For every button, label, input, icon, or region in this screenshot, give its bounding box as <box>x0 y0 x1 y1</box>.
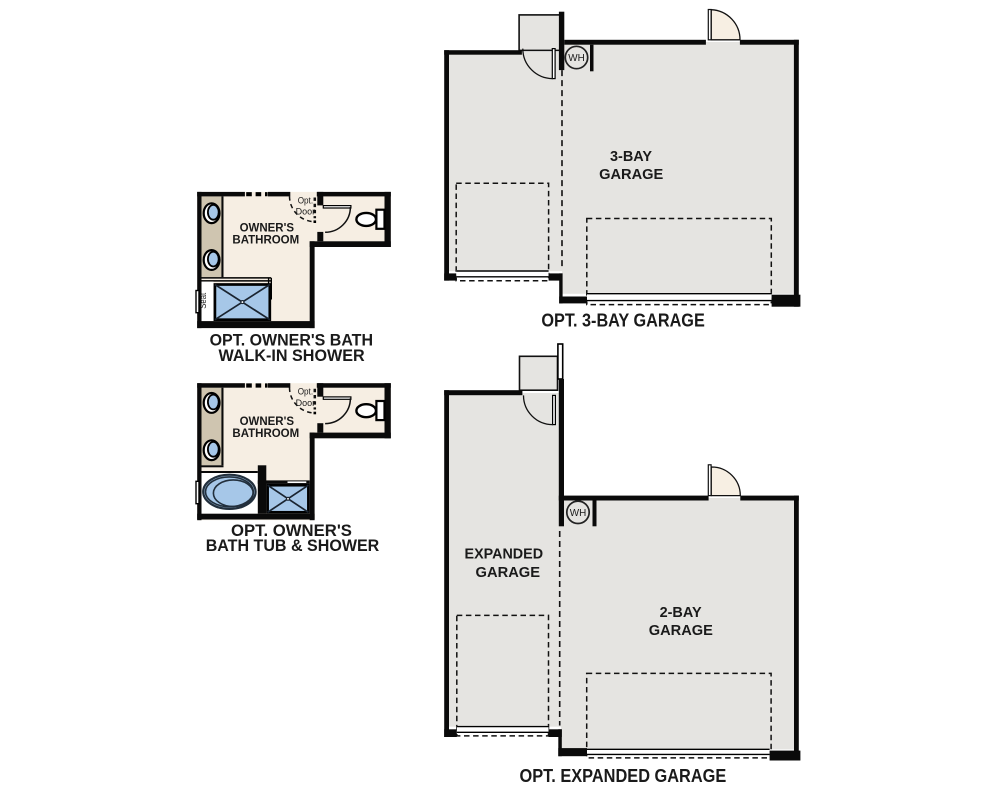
svg-text:OPT. 3-BAY GARAGE: OPT. 3-BAY GARAGE <box>541 310 704 331</box>
svg-text:EXPANDED: EXPANDED <box>465 547 544 563</box>
svg-text:WALK-IN SHOWER: WALK-IN SHOWER <box>219 346 365 365</box>
svg-text:3-BAY: 3-BAY <box>610 149 652 165</box>
svg-text:Door: Door <box>296 207 316 217</box>
svg-text:GARAGE: GARAGE <box>476 565 541 581</box>
svg-text:Opt.: Opt. <box>298 195 313 205</box>
svg-text:Opt.: Opt. <box>298 387 313 397</box>
svg-text:WH: WH <box>570 508 587 519</box>
svg-text:BATHROOM: BATHROOM <box>232 233 299 247</box>
svg-text:GARAGE: GARAGE <box>649 623 713 639</box>
svg-text:2-BAY: 2-BAY <box>660 605 702 621</box>
svg-text:GARAGE: GARAGE <box>599 167 664 183</box>
svg-text:OPT. EXPANDED GARAGE: OPT. EXPANDED GARAGE <box>520 765 727 786</box>
svg-text:Door: Door <box>296 398 316 408</box>
svg-text:WH: WH <box>568 53 585 64</box>
svg-text:BATH TUB & SHOWER: BATH TUB & SHOWER <box>206 536 380 555</box>
svg-text:BATHROOM: BATHROOM <box>232 426 299 440</box>
